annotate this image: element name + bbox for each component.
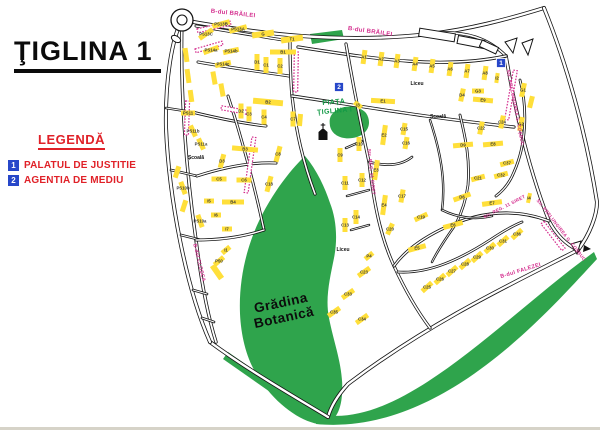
building-block: E8: [483, 141, 503, 148]
building-bar: [527, 96, 535, 109]
block-label: A5: [429, 64, 435, 69]
block-label: D3: [219, 159, 225, 164]
block-label: I3: [356, 103, 360, 108]
block-label: C27: [448, 269, 456, 274]
building-bar: [180, 200, 188, 213]
building-block: C37: [499, 158, 514, 168]
block-label: A6: [447, 67, 453, 72]
block-label: PS11b: [187, 129, 200, 134]
block-label: B4: [230, 200, 236, 205]
facility-label: Liceu: [336, 247, 349, 253]
facility-label: Școală: [430, 114, 446, 120]
block-label: I5: [207, 199, 211, 204]
facility-label: Școală: [188, 155, 204, 161]
block-label: D4: [459, 93, 465, 98]
block-label: P4: [366, 254, 372, 259]
poi-marker-1: 1: [497, 59, 506, 68]
building-block: C18: [263, 175, 276, 193]
building-block: C3: [246, 107, 252, 122]
block-label: C4: [261, 115, 267, 120]
block-label: B1: [280, 50, 286, 55]
block-label: E7: [489, 201, 495, 206]
block-label: PS11a: [195, 142, 208, 147]
building-block: C4: [261, 110, 267, 125]
poi-marker-number: 1: [499, 60, 503, 67]
block-label: C37: [503, 161, 511, 166]
block-label: C30: [486, 246, 494, 251]
hatched-strip: [294, 52, 299, 92]
block-label: C1: [263, 63, 269, 68]
building-block: A7: [463, 64, 472, 79]
block-label: P50: [215, 259, 223, 264]
building-block: D4: [458, 88, 468, 102]
building-block: D9: [453, 142, 473, 149]
map-page: ŢIGLINA 1 LEGENDĂ 1 PALATUL DE JUSTITIE …: [0, 0, 600, 430]
building-block: D2: [238, 104, 244, 119]
block-label: C20: [386, 227, 394, 232]
building-block: C33: [340, 287, 357, 302]
block-label: G1: [520, 88, 526, 93]
block-label: C14: [352, 215, 360, 220]
building-block: C21: [470, 173, 485, 183]
block-label: T1: [289, 37, 295, 42]
building-block: A8: [481, 66, 490, 81]
block-label: C15: [400, 127, 408, 132]
block-label: I7: [225, 227, 229, 232]
piata-line: PIAŢA: [322, 98, 346, 107]
building-block: PS11a: [192, 135, 210, 152]
building-block: I4: [526, 193, 533, 204]
buildings-layer: PS13BPS13APS13CPS14aPS14bPS14cGT1B1D1C1C…: [173, 18, 535, 327]
building-block: I5: [204, 199, 214, 204]
block-label: C19: [417, 215, 425, 220]
block-label: C12: [358, 178, 366, 183]
block-label: I6: [214, 213, 218, 218]
block-label: E9: [480, 98, 486, 103]
road-casing: [197, 163, 276, 176]
building-block: I1: [220, 244, 232, 255]
block-label: A4: [412, 62, 418, 67]
block-label: A1: [361, 55, 367, 60]
building-block: E4: [380, 195, 389, 216]
block-label: B3: [242, 147, 248, 152]
building-block: D3: [217, 153, 228, 168]
road-casing: [506, 56, 578, 250]
road-surface: [351, 225, 369, 230]
church-body: [319, 128, 328, 140]
block-label: A3: [394, 59, 400, 64]
building-block: B1: [270, 50, 296, 55]
building-block: C12: [358, 173, 366, 187]
block-label: C10: [355, 142, 363, 147]
building-block: C27: [444, 263, 460, 279]
block-label: PS14b: [224, 49, 238, 54]
block-label: E8: [490, 142, 496, 147]
block-label: D6: [459, 195, 465, 200]
building-block: C15: [399, 122, 410, 135]
road-surface: [298, 47, 506, 62]
building-block: C5: [212, 177, 227, 182]
building-block: D1: [254, 54, 260, 70]
block-label: A8: [482, 71, 488, 76]
road-surface: [430, 120, 443, 210]
block-label: C11: [341, 181, 349, 186]
block-label: C23: [360, 270, 368, 275]
parks-layer: [223, 30, 597, 425]
church-cross: [321, 123, 326, 128]
block-label: E1: [380, 99, 386, 104]
building-bar: [183, 48, 190, 63]
road-casing: [328, 250, 578, 417]
block-label: PS11: [183, 111, 194, 116]
building-block: B4: [222, 200, 244, 205]
block-label: C3: [246, 112, 252, 117]
building-block: E9: [473, 96, 493, 103]
block-label: C25: [423, 285, 431, 290]
block-label: C29: [473, 255, 481, 260]
building-block: C17: [397, 189, 408, 203]
building-bar: [210, 264, 224, 281]
building-block: C28: [457, 256, 473, 272]
building-block: PS11: [181, 111, 195, 116]
block-label: I1: [224, 248, 228, 253]
building-block: I7: [222, 227, 232, 232]
piata-tiglina-label: PIAŢAŢIGLINA I: [316, 97, 352, 116]
building-block: C36: [509, 226, 525, 242]
traffic-island: [522, 39, 533, 55]
poi-marker-2: 2: [335, 83, 344, 92]
building-block: C14: [352, 210, 360, 224]
block-label: C28: [461, 262, 469, 267]
block-label: PS13C: [199, 32, 213, 37]
block-label: PS14c: [217, 62, 231, 67]
building-block: C8: [273, 145, 284, 162]
block-label: C21: [474, 176, 482, 181]
block-label: E2: [381, 133, 387, 138]
block-label: E5: [414, 246, 420, 251]
building-block: PS14b: [222, 46, 239, 57]
block-label: C36: [513, 232, 521, 237]
green-strip-falezei: [316, 252, 597, 425]
building-bar: [218, 83, 225, 97]
block-label: I2: [495, 76, 499, 81]
building-bar: [297, 114, 303, 126]
block-label: PS10b: [176, 186, 190, 191]
block-label: C34: [358, 317, 366, 322]
block-label: C22: [477, 126, 485, 131]
poi-marker-number: 2: [337, 84, 341, 91]
building-block: C32: [493, 170, 508, 180]
street-label: Str. PRELUNGIREA G. COȘBUC: [535, 198, 587, 263]
road-surface: [182, 20, 216, 342]
block-label: D1: [254, 60, 260, 65]
block-label: C31: [499, 239, 507, 244]
building-block: A6: [446, 62, 455, 77]
street-label: Str. REG. 11 SIRET: [367, 149, 377, 196]
building-bar: [185, 69, 192, 84]
block-label: C26: [436, 277, 444, 282]
building-block: D6: [452, 191, 471, 204]
building-block: E2: [380, 125, 389, 146]
traffic-island: [505, 38, 517, 53]
road-casing: [182, 20, 216, 342]
street-map: PS13BPS13APS13CPS14aPS14bPS14cGT1B1D1C1C…: [0, 0, 600, 430]
block-label: C17: [398, 194, 406, 199]
block-label: C9: [337, 153, 343, 158]
road-surface: [456, 115, 469, 224]
building-block: I6: [211, 213, 221, 218]
block-label: B2: [265, 100, 271, 105]
block-label: C8: [275, 152, 281, 157]
block-label: C6: [241, 178, 247, 183]
street-label: B-dul BRĂILEI: [210, 8, 255, 20]
facility-label: Liceu: [410, 81, 423, 87]
building-block: C19: [413, 211, 429, 224]
block-label: G3: [475, 89, 481, 94]
block-label: C35: [330, 310, 338, 315]
building-block: C9: [337, 148, 343, 162]
block-label: PS14a: [205, 48, 219, 53]
church-icon: [319, 123, 328, 140]
building-block: C10: [355, 137, 363, 151]
block-label: E6: [450, 223, 456, 228]
block-label: C13: [341, 223, 349, 228]
building-block: C16: [401, 136, 412, 149]
block-label: D2: [238, 109, 244, 114]
building-block: C25: [419, 279, 435, 295]
block-label: C24: [498, 120, 506, 125]
building-block: C7: [290, 112, 296, 127]
block-label: D9: [460, 143, 466, 148]
building-block: C13: [341, 218, 349, 232]
block-label: E4: [381, 203, 387, 208]
block-label: PS13B: [214, 22, 228, 27]
roundabout-island: [177, 15, 187, 25]
building-block: C1: [263, 57, 269, 73]
block-label: PS13A: [231, 27, 245, 32]
building-block: P4: [363, 250, 376, 262]
building-block: C11: [341, 176, 349, 190]
building-block: A4: [411, 57, 420, 72]
building-block: G3: [472, 89, 484, 94]
block-label: C2: [277, 64, 283, 69]
building-block: C20: [383, 222, 397, 237]
building-bar: [188, 90, 195, 103]
road-surface: [328, 250, 578, 417]
road-surface: [506, 56, 578, 250]
building-block: C34: [354, 312, 371, 327]
road-surface: [347, 190, 369, 196]
block-label: PS10a: [194, 219, 208, 224]
building-block: E1: [371, 98, 395, 105]
block-label: C5: [216, 177, 222, 182]
building-block: I2: [494, 73, 500, 84]
building-block: C6: [237, 178, 252, 183]
block-label: A2: [378, 57, 384, 62]
block-label: C33: [344, 292, 352, 297]
direction-arrow: [583, 245, 591, 252]
block-label: C32: [497, 173, 505, 178]
block-label: I4: [527, 196, 531, 201]
street-label: B-dul CLOȘCA: [191, 243, 206, 282]
building-block: B2: [253, 98, 283, 107]
street-label: Str. REG. 11 SIRET: [483, 194, 526, 219]
block-label: C7: [290, 117, 296, 122]
block-label: C16: [402, 141, 410, 146]
block-label: A7: [464, 69, 470, 74]
block-label: C18: [265, 182, 273, 187]
building-block: C2: [277, 58, 283, 74]
building-bar: [210, 71, 217, 85]
building-block: C23: [356, 265, 373, 280]
